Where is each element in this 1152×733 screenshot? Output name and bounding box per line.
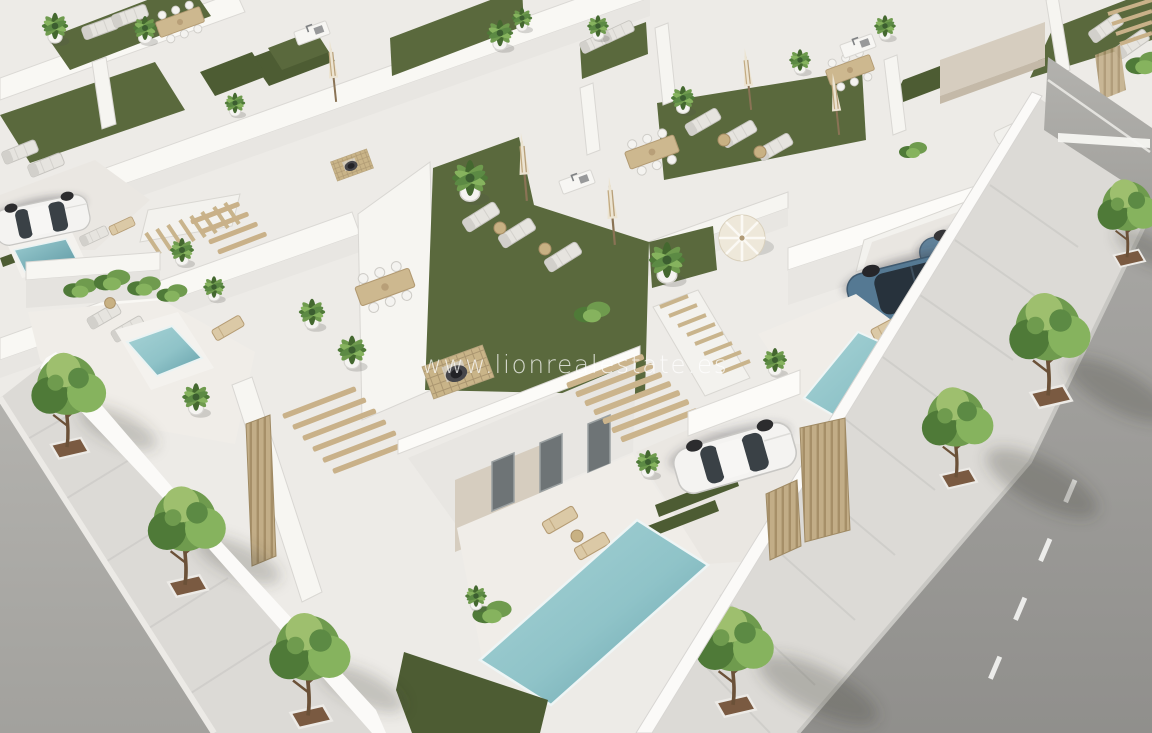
- wood-gate: [766, 480, 801, 560]
- wood-gate: [800, 418, 850, 542]
- watermark-text: www.lionrealestate.es: [422, 350, 729, 379]
- villa-aerial-render: www.lionrealestate.es: [0, 0, 1152, 733]
- screenshot-root: www.lionrealestate.es: [0, 0, 1152, 733]
